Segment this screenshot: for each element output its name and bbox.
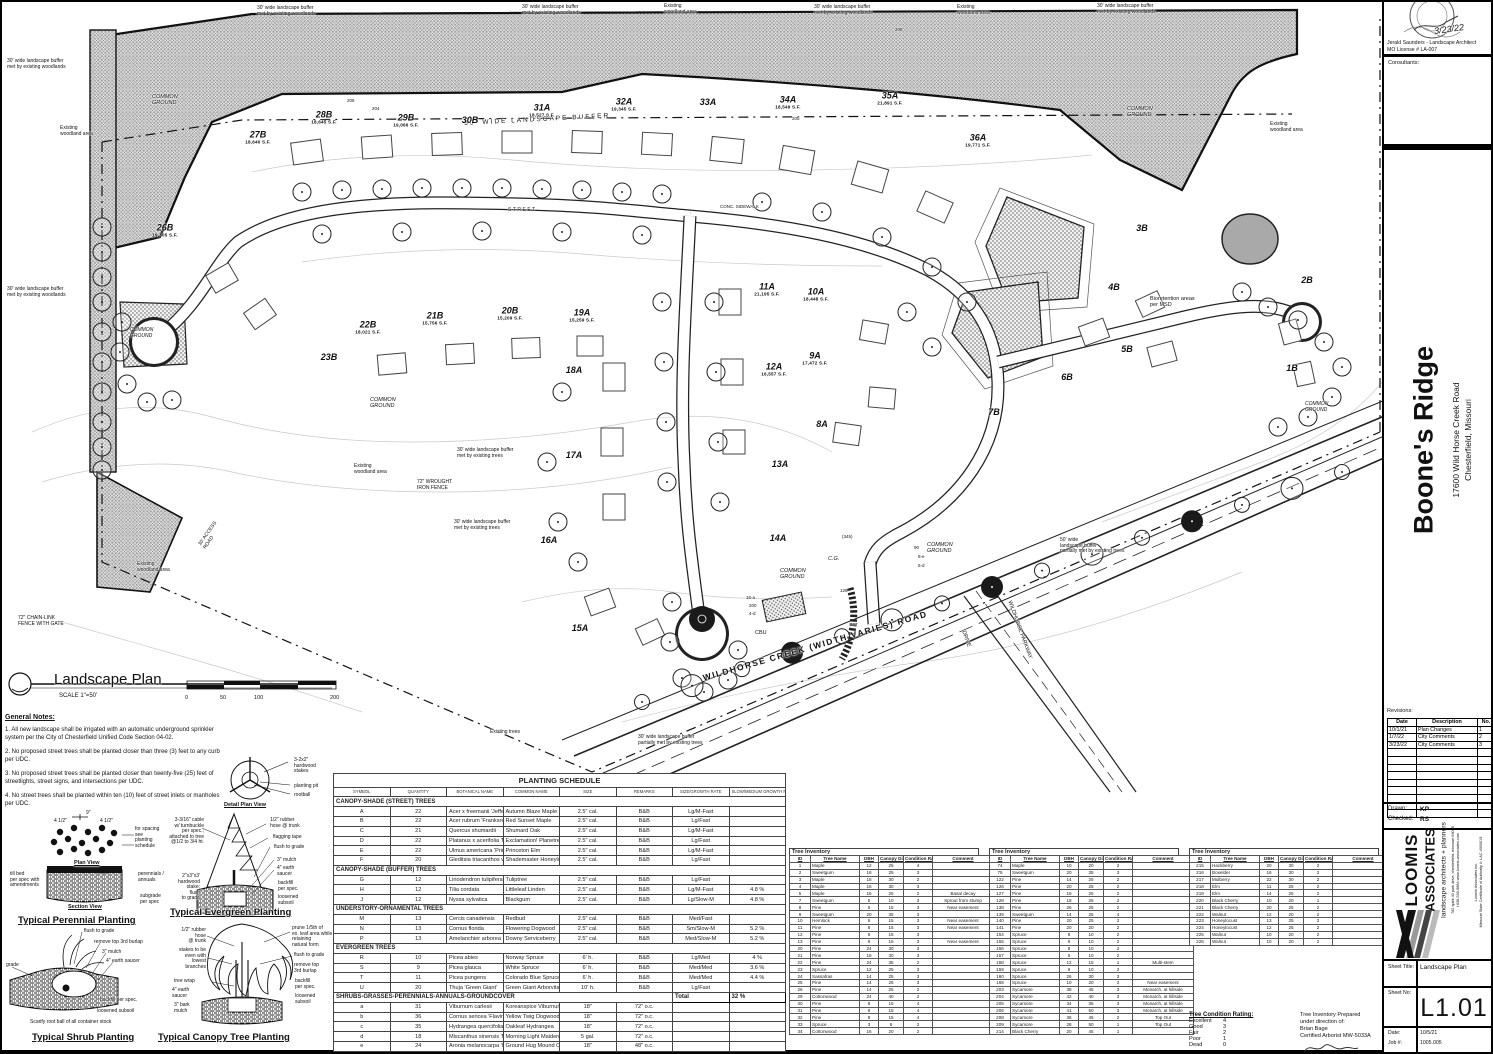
plan-label: 30' wide landscape buffer met by existin… bbox=[7, 59, 66, 70]
lot-label: 11A21,195 S.F. bbox=[754, 282, 779, 297]
inventory-row: 22Pine24352 bbox=[790, 959, 994, 966]
plan-label: COMMON GROUND bbox=[130, 328, 153, 339]
inventory-row: 156Spruce8102 bbox=[990, 945, 1194, 952]
inventory-row: 226Walnut10202 bbox=[1190, 938, 1394, 945]
revision-row bbox=[1388, 787, 1493, 795]
plan-label: subgrade per spec bbox=[140, 894, 161, 905]
plan-label: 50' wide landscape buffer partially met … bbox=[1060, 538, 1124, 555]
inventory-row: 75Sweetgum20353 bbox=[990, 869, 1194, 876]
plan-label: Section View bbox=[68, 904, 102, 910]
inventory-row: 7Sweetgum5103Sprout from stump bbox=[790, 897, 994, 904]
evergreen-detail-figure bbox=[197, 814, 274, 916]
lot-label: 23B bbox=[321, 352, 338, 362]
plan-label: 2"x3"x3' hardwood stake; flush to grade bbox=[162, 874, 200, 902]
plan-label: prune 1/5th of ex. leaf area while retai… bbox=[292, 926, 332, 948]
plan-label: 100 bbox=[254, 695, 263, 701]
plan-label: 4-d bbox=[749, 611, 756, 616]
plan-label: COMMON GROUND bbox=[1127, 106, 1153, 118]
schedule-row: R10Picea abiesNorway Spruce6' h.B&BLg/Me… bbox=[334, 953, 786, 963]
plan-label: 4" earth saucer bbox=[106, 959, 140, 965]
lot-label: 34A18,549 S.F. bbox=[775, 95, 800, 110]
plan-label: 30' wide landscape buffer met by existin… bbox=[454, 520, 510, 531]
lot-label: 20B15,209 S.F. bbox=[497, 306, 522, 321]
inventory-row: 160Spruce26303 bbox=[990, 973, 1194, 980]
plan-label: 200 bbox=[330, 695, 339, 701]
plan-label: 4 1/2" bbox=[100, 819, 113, 825]
schedule-column-header: QUANTITY bbox=[390, 787, 447, 797]
schedule-column-header: SLOW/MEDIUM GROWTH RATE % bbox=[729, 787, 786, 797]
inventory-row: 21Pine18303 bbox=[790, 952, 994, 959]
revision-row bbox=[1388, 756, 1493, 764]
plan-label: 30' wide landscape buffer met by existin… bbox=[1097, 4, 1156, 15]
plan-label: 90 bbox=[914, 545, 919, 550]
consultants-label: Consultants: bbox=[1388, 60, 1419, 67]
revision-row bbox=[1388, 772, 1493, 780]
inventory-row: 20Pine24303 bbox=[790, 945, 994, 952]
plan-label: loosened subsoil bbox=[97, 1009, 134, 1015]
schedule-column-header: COMMON NAME bbox=[503, 787, 560, 797]
title-block: 3/23/22 Jerald Saunders - Landscape Arch… bbox=[1382, 2, 1493, 1054]
plan-label: COMMON GROUND bbox=[152, 94, 178, 106]
plan-label: 206 bbox=[347, 98, 355, 103]
inventory-row: 34Cottonwood16202 bbox=[790, 1028, 994, 1035]
pond bbox=[1222, 214, 1278, 264]
plan-label: 3" mulch bbox=[277, 858, 296, 864]
schedule-section-row: EVERGREEN TREES bbox=[334, 944, 786, 954]
general-note: 2. No proposed street trees shall be pla… bbox=[5, 749, 223, 764]
plan-label: backfill per spec. bbox=[295, 979, 316, 990]
lot-label: 15A bbox=[572, 623, 589, 633]
lot-label: 1B bbox=[1286, 363, 1298, 373]
lot-label: 33A bbox=[700, 97, 717, 107]
plan-label: remove top 3rd burlap bbox=[294, 963, 319, 974]
revision-row bbox=[1388, 779, 1493, 787]
lot-label: 13A bbox=[772, 459, 789, 469]
inventory-row: 223Honeylocust13252 bbox=[1190, 918, 1394, 925]
schedule-row: E22Ulmus americana 'Princeton'Princeton … bbox=[334, 846, 786, 856]
inventory-row: 24Sassafras14253 bbox=[790, 973, 994, 980]
plan-label: COMMON GROUND bbox=[927, 542, 953, 554]
lot-label: 14A bbox=[770, 533, 787, 543]
lot-label: 18A bbox=[566, 365, 583, 375]
inventory-row: 33Spruce362 bbox=[790, 1021, 994, 1028]
lot-label: 29B19,066 S.F. bbox=[393, 113, 418, 128]
plan-label: Scarify root ball of all container stock bbox=[30, 1020, 111, 1026]
revision-row bbox=[1388, 749, 1493, 757]
planting-schedule-title: PLANTING SCHEDULE bbox=[334, 774, 786, 788]
inventory-row: 122Pine14252 bbox=[990, 876, 1194, 883]
schedule-row: S9Picea glaucaWhite Spruce6' h.B&BMed/Me… bbox=[334, 963, 786, 973]
plan-label: 4 1/2" bbox=[54, 819, 67, 825]
lot-label: 3B bbox=[1136, 223, 1148, 233]
plan-label: 204 bbox=[372, 106, 380, 111]
schedule-row: B22Acer rubrum 'Franksred'Red Sunset Map… bbox=[334, 816, 786, 826]
plan-label: 4" earth saucer bbox=[277, 866, 294, 877]
inventory-row: 219Elm14252 bbox=[1190, 890, 1394, 897]
plan-label: loosened subsoil bbox=[295, 994, 315, 1005]
plan-label: Typical Evergreen Planting bbox=[170, 908, 291, 919]
plan-label: perennials / annuals bbox=[138, 872, 164, 883]
inventory-row: 204Sycamore42403Monarch, at hillside bbox=[990, 993, 1194, 1000]
plan-label: Landscape Plan bbox=[54, 672, 162, 689]
general-notes: General Notes: 1. All new landscape shal… bbox=[5, 714, 223, 815]
inventory-row: 9Sweetgum20353 bbox=[790, 911, 994, 918]
schedule-row: d18Miscanthus sinensis 'Morning Light'Mo… bbox=[334, 1032, 786, 1042]
revision-row bbox=[1388, 794, 1493, 802]
inventory-row: 158Spruce12151Multi-stem bbox=[990, 959, 1194, 966]
plan-label: grade bbox=[6, 963, 19, 969]
canopy-detail-figure bbox=[202, 924, 293, 1024]
plan-label: planting pit bbox=[294, 784, 318, 790]
inventory-row: 216Boxelder16302 bbox=[1190, 869, 1394, 876]
schedule-column-header: BOTANICAL NAME bbox=[447, 787, 504, 797]
inventory-row: 12Pine6153 bbox=[790, 931, 994, 938]
revision-row bbox=[1388, 764, 1493, 772]
plan-label: 3-2x2" hardwood stakes bbox=[294, 758, 316, 775]
plan-label: Typical Shrub Planting bbox=[32, 1033, 134, 1044]
inventory-row: 205Sycamore34353Monarch, at hillside bbox=[990, 1000, 1194, 1007]
plan-label: COMMON GROUND bbox=[1305, 402, 1328, 413]
plan-label: C.G. bbox=[828, 556, 839, 562]
inventory-row: 157Spruce6102 bbox=[990, 952, 1194, 959]
inventory-row: 128Pine18252 bbox=[990, 897, 1194, 904]
schedule-column-header: SIZE/GROWTH RATE bbox=[673, 787, 730, 797]
schedule-row: M13Cercis canadensisRedbud2.5" cal.B&BMe… bbox=[334, 914, 786, 924]
plan-label: 200 bbox=[749, 603, 757, 608]
tree-condition-rating: Tree Condition Rating: Excellent4Good3Fa… bbox=[1189, 1012, 1253, 1048]
plan-label: flagging tape bbox=[273, 835, 302, 841]
inventory-row: 220Black Cherry10201 bbox=[1190, 897, 1394, 904]
arborist-line: Brian Bage bbox=[1300, 1026, 1371, 1033]
inventory-row: 218Elm11252 bbox=[1190, 883, 1394, 890]
lot-label: 26B19,305 S.F. bbox=[152, 223, 177, 238]
plan-label: 127 bbox=[850, 622, 858, 627]
schedule-row: a31Viburnum carlesiiKoreanspice Viburnum… bbox=[334, 1002, 786, 1012]
schedule-row: D22Platanus x acerifolia 'Morton Circle'… bbox=[334, 836, 786, 846]
plan-label: 208 bbox=[895, 27, 903, 32]
architect-name: Jerald Saunders - Landscape Architect bbox=[1387, 40, 1476, 46]
arborist-note: Tree Inventory Preparedunder direction o… bbox=[1300, 1012, 1371, 1054]
schedule-row: H12Tilia cordataLittleleaf Linden2.5" ca… bbox=[334, 885, 786, 895]
checked-value: RS bbox=[1420, 816, 1429, 824]
inventory-row: 225Walnut10202 bbox=[1190, 931, 1394, 938]
inventory-row: 25Pine14253 bbox=[790, 980, 994, 987]
lot-label: 21B15,756 S.F. bbox=[422, 311, 447, 326]
arborist-line: Certified Arborist MW-5033A bbox=[1300, 1033, 1371, 1040]
sheet-no-label: Sheet No: bbox=[1388, 990, 1414, 996]
plan-label: Detail Plan View bbox=[224, 802, 266, 808]
plan-label: 3" mulch bbox=[102, 950, 121, 956]
plan-label: Existing woodland area bbox=[354, 464, 387, 475]
planting-schedule: PLANTING SCHEDULESYMBOLQUANTITYBOTANICAL… bbox=[333, 773, 786, 1054]
tree-inventory-table: Tree InventoryIDTree NameDBHCanopy Diam.… bbox=[1189, 848, 1379, 946]
schedule-row: T11Picea pungensColorado Blue Spruce6' h… bbox=[334, 973, 786, 983]
sheet-number: L1.01 bbox=[1416, 994, 1492, 1023]
plan-label: Existing woodland area bbox=[60, 126, 93, 137]
plan-label: 205 bbox=[792, 116, 800, 121]
inventory-row: 221Black Cherry20252 bbox=[1190, 904, 1394, 911]
schedule-row: U20Thuja 'Green Giant'Green Giant Arborv… bbox=[334, 983, 786, 993]
arborist-signature bbox=[1300, 1040, 1360, 1054]
job-value: 1005.005 bbox=[1420, 1040, 1442, 1046]
inventory-row: 140Pine20252 bbox=[990, 918, 1194, 925]
lot-label: 36A19,771 S.F. bbox=[965, 133, 990, 148]
schedule-row: P13Amelanchier arboreaDowny Serviceberry… bbox=[334, 934, 786, 944]
lot-label: 35A21,891 S.F. bbox=[877, 91, 902, 106]
plan-label: for spacing see planting schedule bbox=[135, 827, 159, 849]
checked-label: Checked: bbox=[1388, 816, 1413, 823]
plan-label: 30' wide landscape buffer partially met … bbox=[638, 735, 702, 746]
firm-address-2: t 636-530-9884 www.loomis-associates.com bbox=[1456, 833, 1460, 907]
inventory-row: 74Maple10202 bbox=[990, 862, 1194, 869]
inventory-row: 222Walnut12202 bbox=[1190, 911, 1394, 918]
inventory-row: 217Mulberry22302 bbox=[1190, 876, 1394, 883]
inventory-row: 32Pine8154 bbox=[790, 1014, 994, 1021]
plan-label: Existing woodland area bbox=[1270, 122, 1303, 133]
inventory-row: 3Maple18302 bbox=[790, 876, 994, 883]
inventory-row: 26Pine14252 bbox=[790, 986, 994, 993]
plan-label: COMMON GROUND bbox=[780, 568, 806, 580]
plan-label: flush to grade bbox=[294, 953, 324, 959]
lot-label: 7B bbox=[988, 407, 1000, 417]
plan-label: 1/2" rubber hose @ trunk bbox=[170, 928, 206, 945]
schedule-column-header: REMARKS bbox=[616, 787, 673, 797]
plan-label: 30' wide landscape buffer met by existin… bbox=[7, 287, 66, 298]
plan-label: 126 bbox=[840, 588, 848, 593]
lot-label: 32A19,345 S.F. bbox=[611, 97, 636, 112]
schedule-column-header: SIZE bbox=[560, 787, 617, 797]
schedule-row: G12Liriodendron tulipiferaTuliptree2.5" … bbox=[334, 875, 786, 885]
schedule-row: b36Cornus sericea 'Flaviramea'Yellow Twi… bbox=[334, 1012, 786, 1022]
lot-label: 4B bbox=[1108, 282, 1120, 292]
firm-address-1: 782 spirit 40 park drive, chesterfield, … bbox=[1451, 826, 1455, 914]
plan-label: 0 bbox=[185, 695, 188, 701]
plan-label: Typical Canopy Tree Planting bbox=[158, 1033, 290, 1044]
plan-label: 30' wide landscape buffer met by existin… bbox=[522, 5, 581, 16]
inventory-row: 138Pine26252 bbox=[990, 904, 1194, 911]
plan-label: tree wrap bbox=[174, 979, 195, 985]
general-note: 3. No proposed street trees shall be pla… bbox=[5, 771, 223, 786]
inventory-row: 139Sweetgum14254 bbox=[990, 911, 1194, 918]
schedule-row: A22Acer x freemanii 'Jeffersred'Autumn B… bbox=[334, 807, 786, 817]
landscape-buffer-hatch bbox=[90, 10, 1297, 592]
lot-label: 30B bbox=[462, 115, 479, 125]
general-note: 4. No street trees shall be planted with… bbox=[5, 793, 223, 808]
cbu-pad bbox=[762, 592, 806, 622]
inventory-row: 4Maple16303 bbox=[790, 883, 994, 890]
inventory-row: 215Hackberry20302 bbox=[1190, 862, 1394, 869]
drawn-label: Drawn: bbox=[1388, 806, 1407, 813]
lot-label: 17A bbox=[566, 450, 583, 460]
inventory-row: 10Hemlock6153Near easement bbox=[790, 918, 994, 925]
revision-row: 3/23/22City Comments3 bbox=[1388, 741, 1493, 749]
plan-label: 5-d bbox=[918, 563, 925, 568]
drawn-value: KP bbox=[1420, 806, 1429, 814]
drawing-sheet: 30' wide landscape buffer met by existin… bbox=[0, 0, 1493, 1054]
plan-label: rootball bbox=[294, 793, 310, 799]
project-name: Boone's Ridge bbox=[1409, 346, 1440, 534]
plan-label: CBU bbox=[755, 630, 767, 636]
plan-label: stakes to be even with lowest branches bbox=[170, 948, 206, 970]
inventory-row: 214Black Cherry20451 bbox=[990, 1028, 1194, 1035]
lot-label: 12A16,557 S.F. bbox=[761, 362, 786, 377]
plan-label: flush to grade bbox=[274, 845, 304, 851]
inventory-row: 126Pine20252 bbox=[990, 883, 1194, 890]
schedule-row: J12Nyssa sylvaticaBlackgum2.5" cal.B&BLg… bbox=[334, 895, 786, 905]
tree-inventory-table: Tree InventoryIDTree NameDBHCanopy Diam.… bbox=[789, 848, 979, 1035]
project-address-2: Chesterfield, Missouri bbox=[1463, 399, 1473, 481]
lot-label: 31A18,527 S.F. bbox=[529, 103, 554, 118]
lot-label: 19A15,259 S.F. bbox=[569, 308, 594, 323]
inventory-row: 127Pine18252 bbox=[990, 890, 1194, 897]
firm-name-2: ASSOCIATES bbox=[1423, 828, 1438, 912]
inventory-row: 155Spruce6102 bbox=[990, 938, 1194, 945]
plan-label: flush to grade bbox=[84, 929, 114, 935]
perennial-detail-figure bbox=[47, 814, 134, 902]
plan-label: Existing trees bbox=[490, 730, 520, 736]
firm-cert-2: Missouri State Certificate of Authority … bbox=[1479, 837, 1483, 928]
schedule-row: e24Aronia melanocarpa 'UCONNAM012'Ground… bbox=[334, 1041, 786, 1051]
lot-label: 28B18,645 S.F. bbox=[311, 110, 336, 125]
plan-label: (345) bbox=[842, 534, 853, 539]
plan-label: backfill per spec. bbox=[278, 881, 299, 892]
job-label: Job #: bbox=[1388, 1040, 1402, 1046]
schedule-column-header: SYMBOL bbox=[334, 787, 391, 797]
inventory-row: 224Honeylocust12252 bbox=[1190, 924, 1394, 931]
schedule-section-row: CANOPY-SHADE (BUFFER) TREES bbox=[334, 865, 786, 875]
plan-label: backfill per spec. bbox=[100, 998, 137, 1004]
plan-label: loosened subsoil bbox=[278, 895, 298, 906]
inventory-row: 8Pine6153Near easement bbox=[790, 904, 994, 911]
sheet-title-label: Sheet Title: bbox=[1388, 964, 1414, 970]
plan-label: Bioretention areas per MSD bbox=[1150, 296, 1195, 308]
plan-label: 50 bbox=[220, 695, 226, 701]
lot-label: 2B bbox=[1301, 275, 1313, 285]
plan-label: till bed per spec with amendments bbox=[10, 872, 39, 889]
architect-license: MO License # LA-007 bbox=[1387, 47, 1437, 53]
schedule-section-row: SHRUBS-GRASSES-PERENNIALS-ANNUALS-GROUND… bbox=[334, 993, 786, 1003]
arborist-line: under direction of: bbox=[1300, 1019, 1371, 1026]
plan-label: 1/2" rubber hose @ trunk bbox=[270, 818, 300, 829]
inventory-row: 30Pine8154 bbox=[790, 1000, 994, 1007]
inventory-row: 206Sycamore41503Monarch, at hillside bbox=[990, 1007, 1194, 1014]
plan-label: 3-3/16" cable w/ turnbuckle per spec.; a… bbox=[162, 818, 204, 846]
tree-inventory-table: Tree InventoryIDTree NameDBHCanopy Diam.… bbox=[989, 848, 1179, 1035]
revisions-label: Revisions: bbox=[1387, 708, 1413, 715]
plan-label: 3" bark mulch bbox=[174, 1003, 190, 1014]
schedule-row: C21Quercus shumardiiShumard Oak2.5" cal.… bbox=[334, 826, 786, 836]
plan-label: Plan View bbox=[74, 860, 100, 866]
inventory-row: 23Spruce12253 bbox=[790, 966, 994, 973]
date-label: Date: bbox=[1388, 1030, 1400, 1036]
firm-cert-1: Loomis Associates Inc. bbox=[1474, 863, 1478, 902]
plan-label: STREET bbox=[508, 208, 537, 214]
lot-label: 8A bbox=[816, 419, 828, 429]
inventory-row: 165Spruce10202Near easement bbox=[990, 980, 1194, 987]
plan-label: 30' wide landscape buffer met by existin… bbox=[257, 6, 316, 17]
schedule-section-row: UNDERSTORY-ORNAMENTAL TREES bbox=[334, 904, 786, 914]
general-note: 1. All new landscape shall be irrigated … bbox=[5, 727, 223, 742]
plan-label: 72" WROUGHT IRON FENCE bbox=[417, 480, 452, 491]
inventory-row: 29Cottonwood24402 bbox=[790, 993, 994, 1000]
lot-label: 16A bbox=[541, 535, 558, 545]
schedule-section-row: CANOPY-SHADE (STREET) TREES bbox=[334, 797, 786, 807]
lot-label: 6B bbox=[1061, 372, 1073, 382]
inventory-row: 13Pine6153Near easement bbox=[790, 938, 994, 945]
general-notes-title: General Notes: bbox=[5, 714, 223, 721]
plan-label: remove top 3rd burlap bbox=[94, 940, 143, 946]
inventory-row: 141Pine20202 bbox=[990, 924, 1194, 931]
plan-label: 16-a bbox=[746, 595, 755, 600]
schedule-row: F20Gleditsia triacanthos var. inermis 'S… bbox=[334, 856, 786, 866]
plan-label: COMMON GROUND bbox=[370, 397, 396, 409]
firm-tagline: landscape architects + planners bbox=[1441, 822, 1448, 918]
lot-label: 22B18,021 S.F. bbox=[355, 320, 380, 335]
lot-label: 5B bbox=[1121, 344, 1133, 354]
plan-label: Typical Perennial Planting bbox=[18, 916, 136, 927]
plan-label: 30' wide landscape buffer met by existin… bbox=[814, 5, 873, 16]
plan-label: 72" CHAIN-LINK FENCE WITH GATE bbox=[18, 616, 64, 627]
inventory-row: 1Maple12254 bbox=[790, 862, 994, 869]
plan-label: CONC. SIDEWALK bbox=[720, 204, 759, 209]
plan-label: SCALE 1"=50' bbox=[59, 693, 97, 700]
inventory-row: 203Sycamore38453Monarch, at hillside bbox=[990, 986, 1194, 993]
date-value: 10/5/21 bbox=[1420, 1030, 1437, 1036]
condition-rating-row: Dead0 bbox=[1189, 1042, 1253, 1048]
inventory-row: 159Spruce6102 bbox=[990, 966, 1194, 973]
plan-label: 4" earth saucer bbox=[172, 988, 189, 999]
plan-label: 30' wide landscape buffer met by existin… bbox=[457, 448, 513, 459]
lot-label: 9A17,472 S.F. bbox=[802, 351, 827, 366]
arborist-line: Tree Inventory Prepared bbox=[1300, 1012, 1371, 1019]
plan-label: 8-e bbox=[918, 554, 925, 559]
evergreen-cluster bbox=[689, 606, 715, 632]
inventory-row: 5Maple16252Basal decay bbox=[790, 890, 994, 897]
inventory-row: 11Pine6153Near easement bbox=[790, 924, 994, 931]
detail-plan-view-figure bbox=[230, 757, 290, 799]
inventory-row: 31Pine8154 bbox=[790, 1007, 994, 1014]
loomis-logo-mark bbox=[1394, 910, 1440, 960]
schedule-row: N13Cornus floridaFlowering Dogwood2.5" c… bbox=[334, 924, 786, 934]
lot-label: 10A18,448 S.F. bbox=[803, 287, 828, 302]
sheet-title-value: Landscape Plan bbox=[1420, 964, 1490, 972]
firm-name-1: LOOMIS bbox=[1402, 833, 1422, 906]
project-address-1: 17600 Wild Horse Creek Road bbox=[1451, 382, 1461, 497]
inventory-row: 209Sycamore28501Top Out bbox=[990, 1021, 1194, 1028]
inventory-row: 208Sycamore36452Top Out bbox=[990, 1014, 1194, 1021]
revision-row: 1/7/22City Comments2 bbox=[1388, 734, 1493, 742]
inventory-row: 2Sweetgum16253 bbox=[790, 869, 994, 876]
plan-label: Existing woodland area bbox=[664, 4, 697, 15]
revision-row: 10/1/21Plan Changes1 bbox=[1388, 726, 1493, 734]
lot-label: 27B18,640 S.F. bbox=[245, 130, 270, 145]
inventory-row: 154Spruce8102 bbox=[990, 931, 1194, 938]
plan-label: Existing woodland area bbox=[137, 562, 170, 573]
schedule-row: c35Hydrangea quercifoliaOakleaf Hydrange… bbox=[334, 1022, 786, 1032]
plan-label: Existing woodland area bbox=[957, 5, 990, 16]
